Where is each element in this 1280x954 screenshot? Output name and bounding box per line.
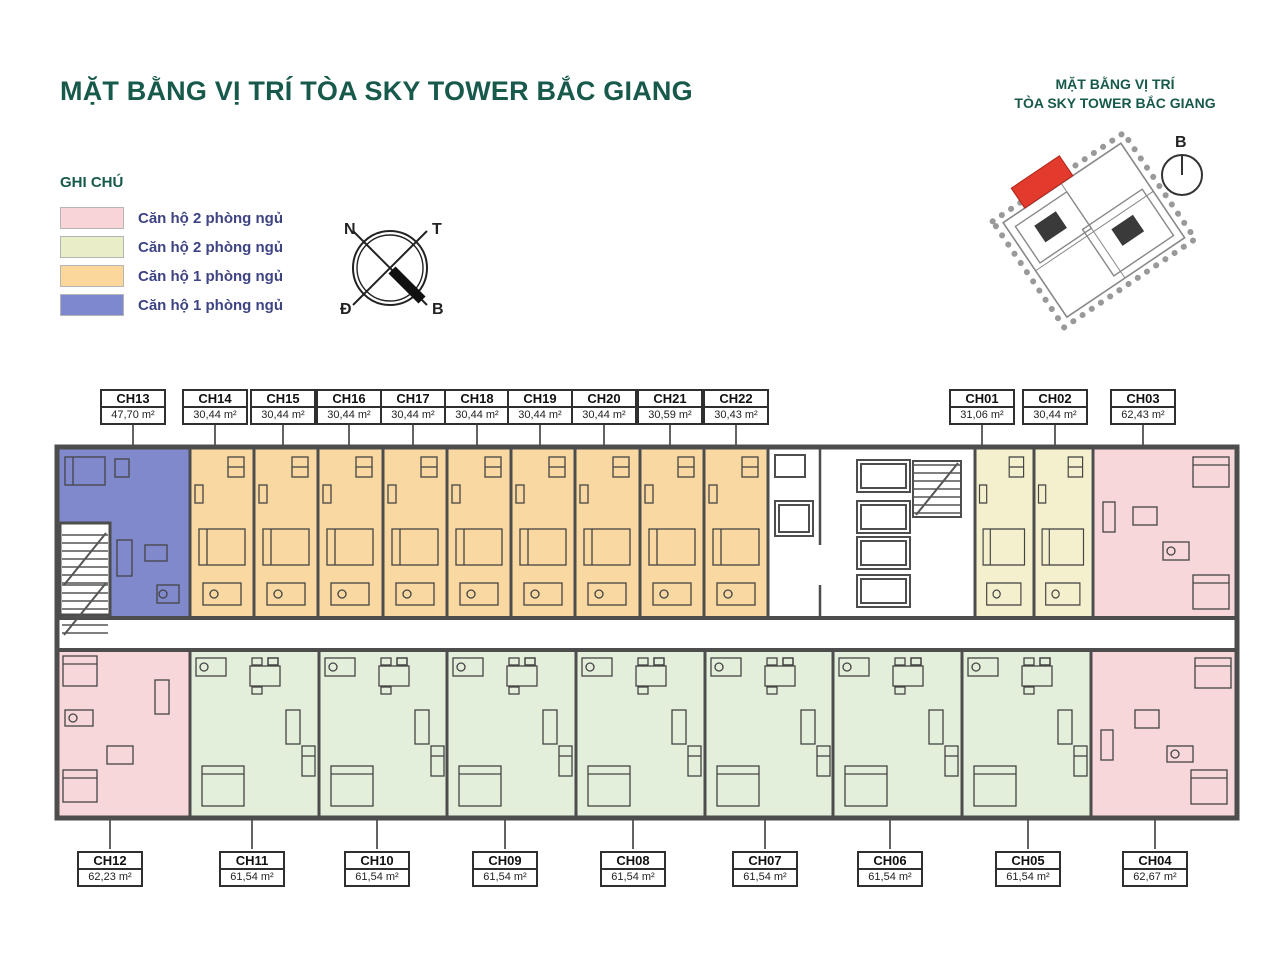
floor-plan-body bbox=[57, 447, 1237, 818]
unit-label-ch01: CH0131,06 m² bbox=[949, 389, 1015, 425]
legend-item-1br-blue: Căn hộ 1 phòng ngủ bbox=[60, 294, 283, 316]
floor-plan-page: MẶT BẰNG VỊ TRÍ TÒA SKY TOWER BẮC GIANG … bbox=[0, 0, 1280, 954]
unit-label-ch21: CH2130,59 m² bbox=[637, 389, 703, 425]
legend-label: Căn hộ 2 phòng ngủ bbox=[138, 239, 283, 256]
unit-label-ch10: CH1061,54 m² bbox=[344, 851, 410, 887]
legend-label: Căn hộ 1 phòng ngủ bbox=[138, 268, 283, 285]
legend-swatch-blue bbox=[60, 294, 124, 316]
unit-label-ch20: CH2030,44 m² bbox=[571, 389, 637, 425]
inset-title-line1: MẶT BẰNG VỊ TRÍ bbox=[985, 75, 1245, 94]
unit-label-ch22: CH2230,43 m² bbox=[703, 389, 769, 425]
inset-compass-b-label: B bbox=[1175, 134, 1187, 151]
unit-label-ch13: CH1347,70 m² bbox=[100, 389, 166, 425]
site-plan-sketch: B bbox=[985, 113, 1245, 338]
compass-d-label: Đ bbox=[340, 301, 352, 318]
unit-label-ch08: CH0861,54 m² bbox=[600, 851, 666, 887]
unit-label-ch04: CH0462,67 m² bbox=[1122, 851, 1188, 887]
page-title: MẶT BẰNG VỊ TRÍ TÒA SKY TOWER BẮC GIANG bbox=[60, 76, 693, 107]
unit-label-ch06: CH0661,54 m² bbox=[857, 851, 923, 887]
legend-item-1br-orange: Căn hộ 1 phòng ngủ bbox=[60, 265, 283, 287]
legend-item-2br-pink: Căn hộ 2 phòng ngủ bbox=[60, 207, 283, 229]
legend: GHI CHÚ Căn hộ 2 phòng ngủ Căn hộ 2 phòn… bbox=[60, 174, 283, 323]
unit-label-ch19: CH1930,44 m² bbox=[507, 389, 573, 425]
legend-label: Căn hộ 2 phòng ngủ bbox=[138, 210, 283, 227]
inset-compass-icon: B bbox=[1162, 134, 1202, 195]
compass-b-label: B bbox=[432, 301, 444, 318]
unit-color-areas bbox=[59, 449, 1235, 818]
elevator-core bbox=[775, 449, 961, 616]
location-inset: MẶT BẰNG VỊ TRÍ TÒA SKY TOWER BẮC GIANG … bbox=[985, 75, 1245, 343]
legend-item-2br-green: Căn hộ 2 phòng ngủ bbox=[60, 236, 283, 258]
legend-swatch-green bbox=[60, 236, 124, 258]
unit-label-ch03: CH0362,43 m² bbox=[1110, 389, 1176, 425]
legend-heading: GHI CHÚ bbox=[60, 174, 283, 191]
compass-t-label: T bbox=[432, 221, 442, 238]
unit-label-ch07: CH0761,54 m² bbox=[732, 851, 798, 887]
legend-swatch-orange bbox=[60, 265, 124, 287]
unit-label-ch14: CH1430,44 m² bbox=[182, 389, 248, 425]
legend-swatch-pink bbox=[60, 207, 124, 229]
legend-label: Căn hộ 1 phòng ngủ bbox=[138, 297, 283, 314]
unit-label-ch15: CH1530,44 m² bbox=[250, 389, 316, 425]
compass-n-label: N bbox=[344, 221, 356, 238]
unit-label-ch02: CH0230,44 m² bbox=[1022, 389, 1088, 425]
inset-title-line2: TÒA SKY TOWER BẮC GIANG bbox=[985, 94, 1245, 113]
unit-label-ch05: CH0561,54 m² bbox=[995, 851, 1061, 887]
unit-label-ch17: CH1730,44 m² bbox=[380, 389, 446, 425]
unit-label-ch11: CH1161,54 m² bbox=[219, 851, 285, 887]
unit-label-ch12: CH1262,23 m² bbox=[77, 851, 143, 887]
unit-label-ch18: CH1830,44 m² bbox=[444, 389, 510, 425]
compass-rose-icon: N T Đ B bbox=[330, 206, 460, 326]
unit-label-ch16: CH1630,44 m² bbox=[316, 389, 382, 425]
unit-label-ch09: CH0961,54 m² bbox=[472, 851, 538, 887]
